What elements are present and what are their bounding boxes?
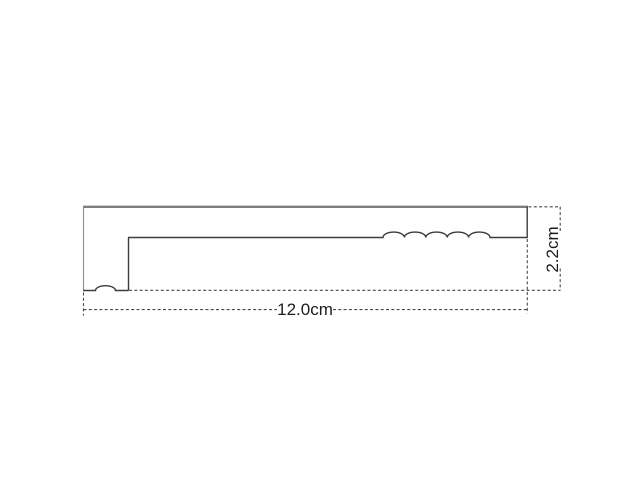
profile-bottom-edge-with-bump <box>83 286 129 291</box>
drawing-canvas: 12.0cm 2.2cm <box>0 0 640 480</box>
width-dimension-label: 12.0cm <box>277 300 333 319</box>
height-dimension-label: 2.2cm <box>543 226 562 272</box>
profile-outline <box>83 207 528 291</box>
profile-drawing: 12.0cm 2.2cm <box>0 0 640 480</box>
profile-inner-line-with-bumps <box>128 232 528 237</box>
